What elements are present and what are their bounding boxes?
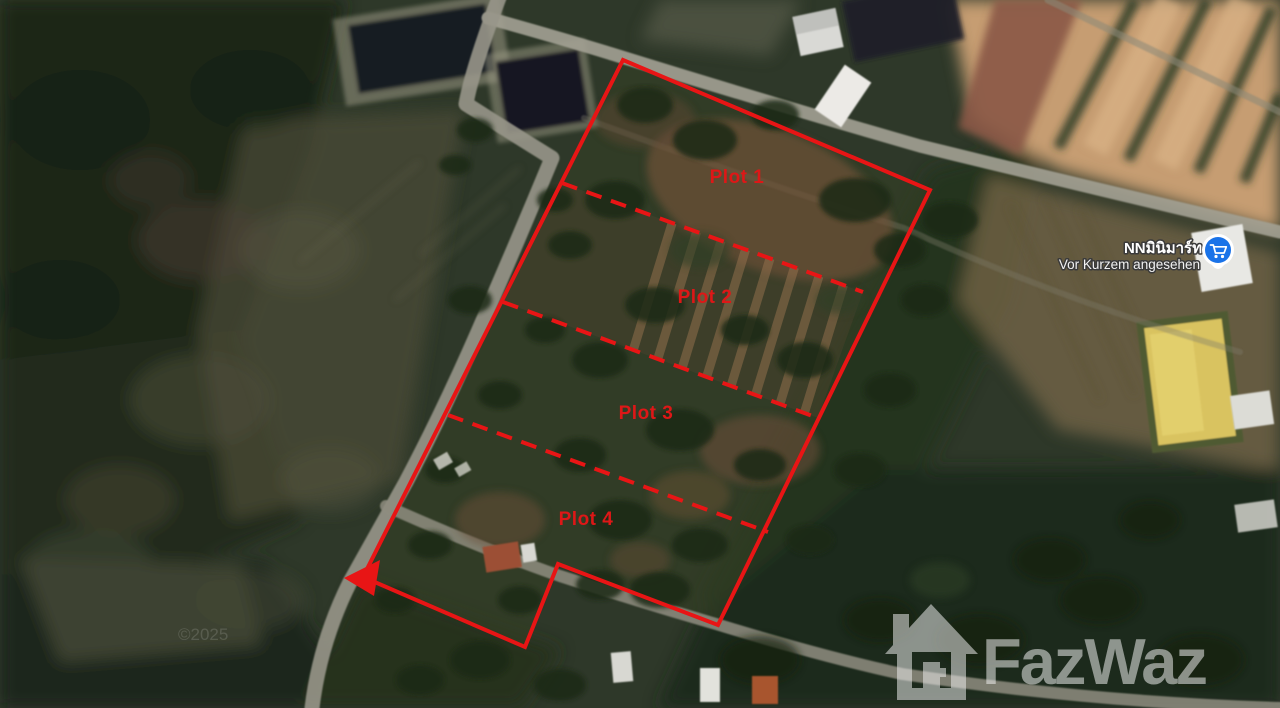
imagery-copyright: ©2025 [178,625,228,644]
poi-status: Vor Kurzem angesehen [1059,257,1200,272]
plot-label-3: Plot 3 [619,403,674,424]
plot-label-2: Plot 2 [678,287,733,308]
house-logo-icon [880,598,985,708]
satellite-map: ©2025 Plot 1 Plot 2 Plot 3 Plot 4 NNมินิ… [0,0,1280,708]
brand-text: FazWaz [982,625,1206,698]
poi-name: NNมินิมาร์ท [1124,239,1202,257]
yellow-pond [1136,311,1243,453]
plot-label-1: Plot 1 [710,167,765,188]
satellite-map-viewport: ©2025 Plot 1 Plot 2 Plot 3 Plot 4 NNมินิ… [0,0,1280,708]
plot-label-4: Plot 4 [559,509,614,530]
